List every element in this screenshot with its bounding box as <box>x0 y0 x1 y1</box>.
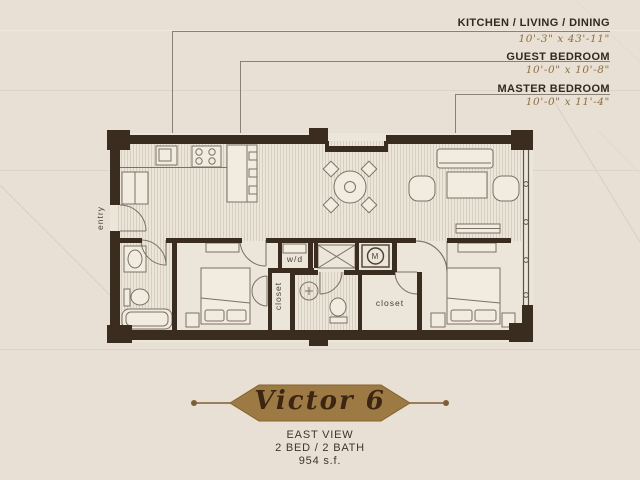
plan-title: Victor 6 <box>230 386 410 416</box>
armchair-left <box>409 176 435 201</box>
master-bed <box>447 268 500 324</box>
media-console <box>456 224 500 233</box>
bath2-toilet <box>330 298 347 323</box>
guest-closet-label: closet <box>273 282 283 310</box>
area-label: 954 s.f. <box>0 455 640 467</box>
guest-nightstand <box>186 313 199 327</box>
guest-bed <box>201 268 250 324</box>
annotation-kitchen-name: KITCHEN / LIVING / DINING <box>458 17 610 29</box>
washer-dryer-label: w/d <box>286 254 303 264</box>
kitchen-island <box>227 145 257 202</box>
annotation-guest-dims: 10'-0" x 10'-8" <box>526 64 610 76</box>
armchair-right <box>493 176 519 201</box>
washer-dryer-unit <box>283 244 306 253</box>
annotation-kitchen-dims: 10'-3" x 43'-11" <box>519 33 611 45</box>
entry-label: entry <box>96 206 105 230</box>
guest-dresser <box>206 243 239 252</box>
meter-label: M <box>372 252 380 261</box>
refrigerator <box>122 172 148 204</box>
coffee-table <box>447 172 487 198</box>
floor-plan: entry w/d closet closet M <box>96 120 540 352</box>
bath2-tile-hatch <box>296 272 358 332</box>
master-nightstand-left <box>431 313 445 327</box>
stove <box>192 146 221 167</box>
master-closet-label: closet <box>376 298 404 308</box>
kitchen-sink <box>156 146 177 165</box>
annotation-master-dims: 10'-0" x 11'-4" <box>526 96 610 108</box>
config-label: 2 BED / 2 BATH <box>0 442 640 454</box>
annotation-guest-name: GUEST BEDROOM <box>506 51 610 63</box>
floor-plan-sheet: KITCHEN / LIVING / DINING 10'-3" x 43'-1… <box>0 0 640 480</box>
bath1-toilet <box>124 289 149 306</box>
master-dresser <box>458 243 496 252</box>
sofa <box>437 149 493 168</box>
view-label: EAST VIEW <box>0 429 640 441</box>
annotation-master-name: MASTER BEDROOM <box>497 83 610 95</box>
